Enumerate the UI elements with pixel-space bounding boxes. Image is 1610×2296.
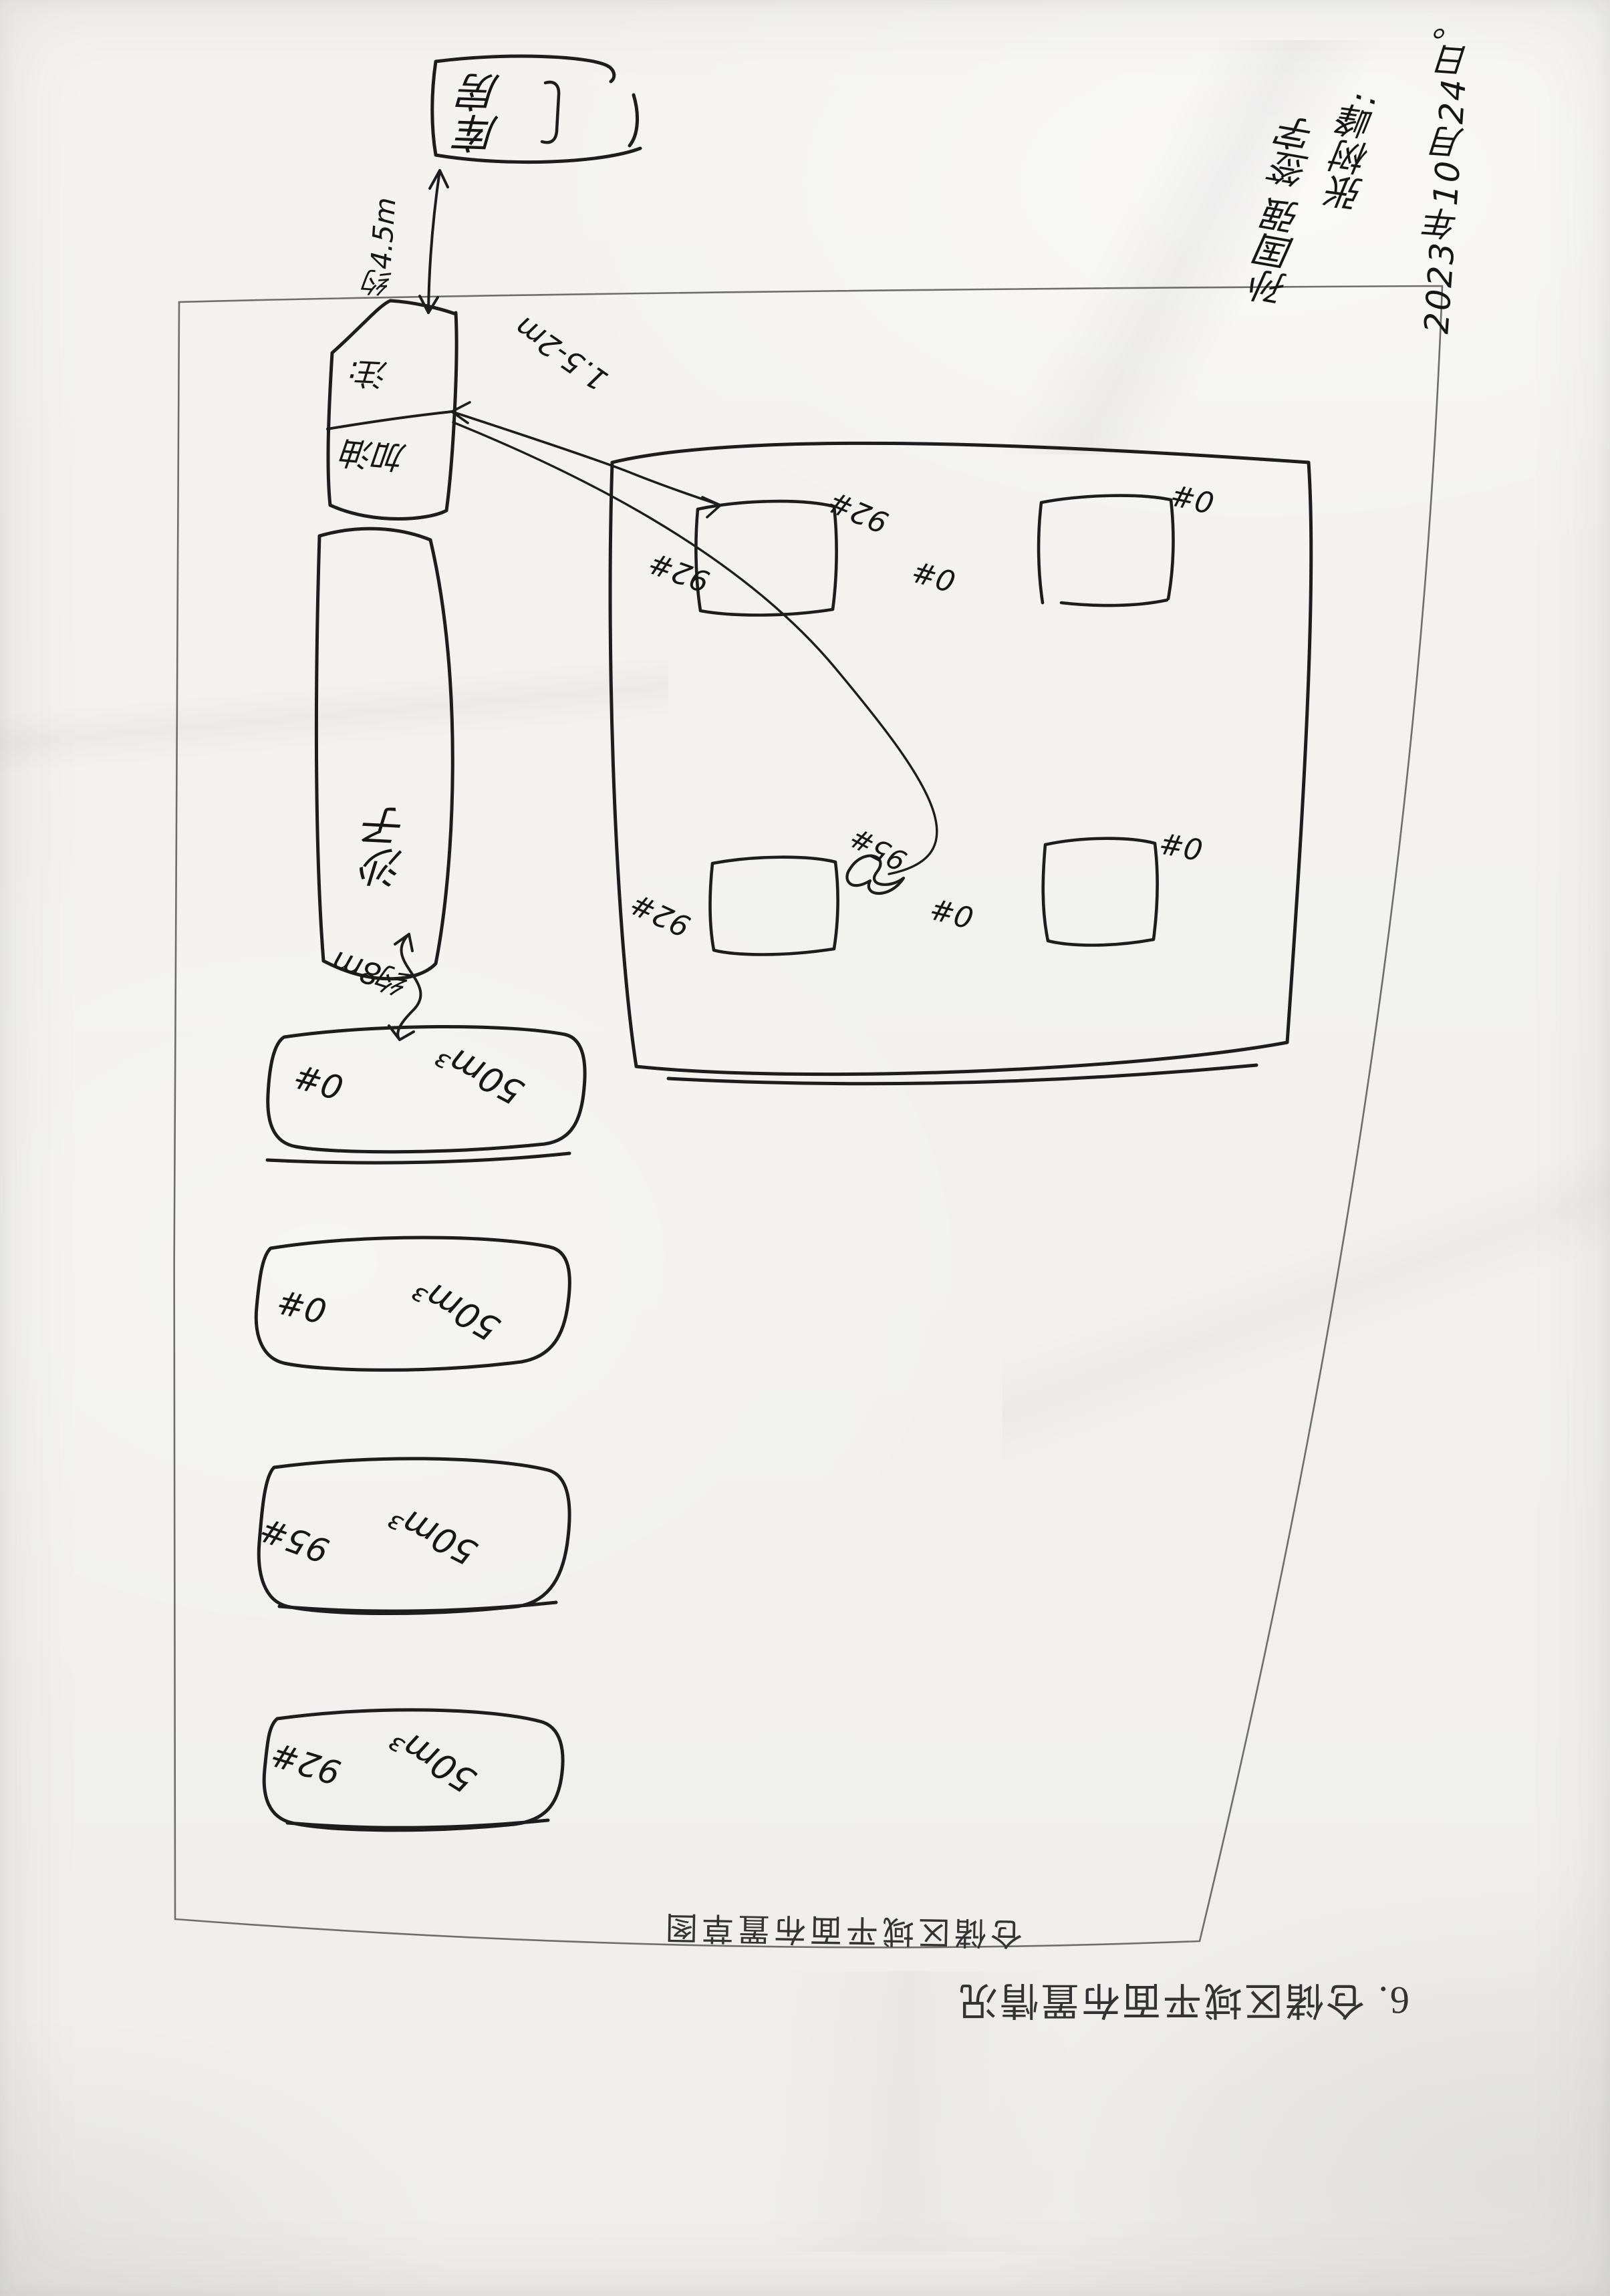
figure-caption: 仓储区域平面布置草图 (662, 1909, 1023, 1949)
note-to-crossed-label-curve (453, 422, 937, 874)
note-box-bottom-text: 加油 (341, 435, 408, 474)
sand-label: 沙子 (364, 744, 414, 889)
sketch-strokes-layer (0, 0, 1610, 2296)
buried-tank-2 (1039, 496, 1173, 605)
scanned-sketch-page: { "page": { "title": "6. 仓储区域平面布置情况", "c… (0, 0, 1610, 2296)
buried4-label-right: 0# (1157, 827, 1205, 865)
building-door-bracket (542, 82, 559, 142)
section-title: 6. 仓储区域平面布置情况 (957, 1979, 1410, 2020)
drawing-border (174, 286, 1442, 1947)
note-box-divider (327, 412, 452, 429)
buried2-label-right: 0# (1168, 478, 1217, 518)
note-to-tank1-arrow (452, 402, 720, 517)
buried-tank-4 (1043, 839, 1158, 946)
building-label: 库房 (459, 34, 507, 156)
building-distance-arrow (420, 170, 448, 313)
note-box-top-text: 注: (347, 356, 390, 390)
note-box (328, 301, 456, 519)
tank-enclosure (610, 443, 1311, 1083)
buried-tank-3 (710, 857, 838, 955)
